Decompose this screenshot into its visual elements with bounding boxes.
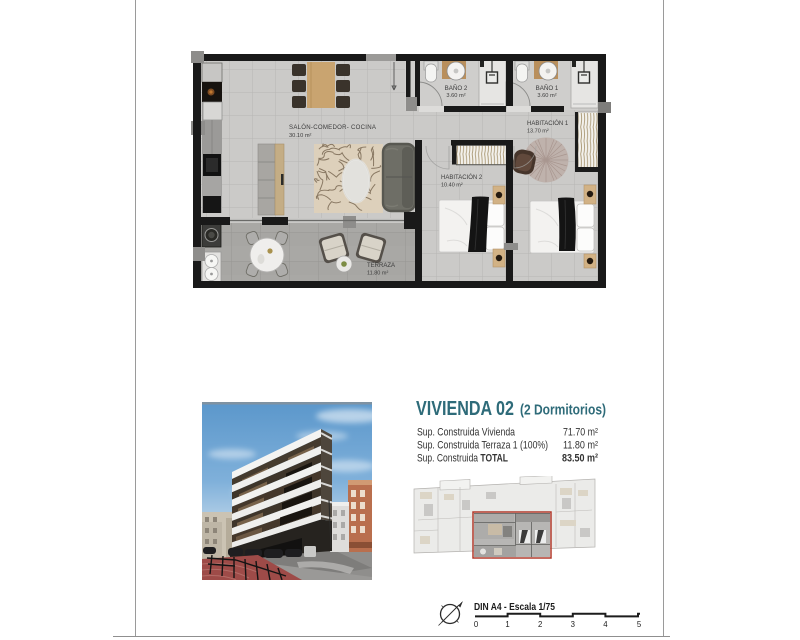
svg-text:10.40 m²: 10.40 m² (441, 183, 463, 189)
svg-text:83.50 m²: 83.50 m² (562, 453, 598, 465)
svg-text:71.70 m²: 71.70 m² (563, 427, 598, 439)
svg-text:BAÑO 2: BAÑO 2 (445, 85, 468, 92)
svg-text:13.70 m²: 13.70 m² (527, 129, 549, 135)
svg-text:Sup. Construida TOTAL: Sup. Construida TOTAL (417, 453, 508, 465)
svg-text:Sup. Construida Vivienda: Sup. Construida Vivienda (417, 427, 516, 439)
svg-text:DIN A4 - Escala 1/75: DIN A4 - Escala 1/75 (474, 602, 555, 613)
svg-text:(2 Dormitorios): (2 Dormitorios) (520, 403, 606, 419)
svg-text:2: 2 (538, 620, 542, 629)
svg-text:3.60 m²: 3.60 m² (537, 93, 556, 99)
svg-text:3.60 m²: 3.60 m² (446, 93, 465, 99)
svg-text:4: 4 (603, 620, 608, 629)
svg-text:TERRAZA: TERRAZA (367, 263, 395, 269)
svg-text:11.80 m²: 11.80 m² (367, 271, 388, 277)
svg-text:11.80 m²: 11.80 m² (563, 440, 598, 452)
svg-text:5: 5 (637, 620, 642, 629)
svg-text:3: 3 (571, 620, 575, 629)
svg-text:30.10 m²: 30.10 m² (289, 133, 312, 139)
svg-text:0: 0 (474, 620, 479, 629)
svg-text:VIVIENDA 02: VIVIENDA 02 (416, 398, 514, 420)
svg-text:HABITACIÓN 2: HABITACIÓN 2 (441, 174, 483, 181)
svg-text:BAÑO 1: BAÑO 1 (536, 85, 559, 92)
svg-text:Sup. Construida Terraza 1 (100: Sup. Construida Terraza 1 (100%) (417, 440, 548, 452)
svg-text:1: 1 (505, 620, 509, 629)
svg-text:SALÓN-COMEDOR- COCINA: SALÓN-COMEDOR- COCINA (289, 124, 377, 131)
svg-text:HABITACIÓN 1: HABITACIÓN 1 (527, 120, 569, 127)
